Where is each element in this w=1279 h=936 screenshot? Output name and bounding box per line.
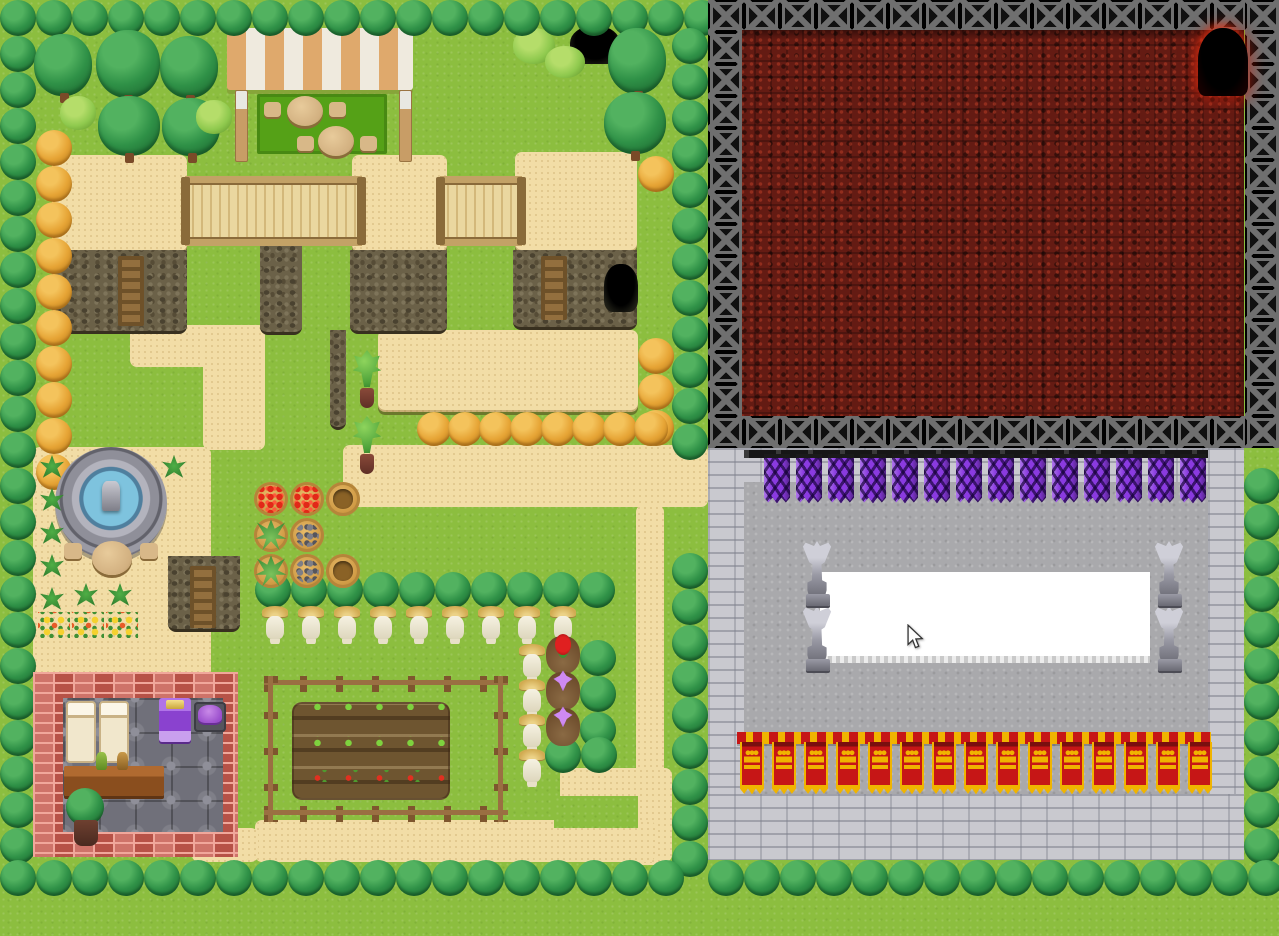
potted-sapling <box>350 350 384 408</box>
tree <box>672 769 708 805</box>
bed <box>66 701 96 763</box>
stool <box>264 102 281 117</box>
cliff <box>260 243 302 335</box>
tree <box>1176 860 1212 896</box>
red-banner <box>964 742 988 796</box>
lava-floor <box>738 28 1244 418</box>
tree <box>672 553 708 589</box>
bush <box>60 96 96 130</box>
tree-orange <box>36 418 72 454</box>
tree <box>672 661 708 697</box>
tree <box>580 640 616 676</box>
tree <box>0 288 36 324</box>
tree <box>360 860 396 896</box>
purple-banner <box>988 454 1014 506</box>
tree-orange <box>36 382 72 418</box>
tree-orange <box>638 374 674 410</box>
sand-plateau <box>515 152 637 252</box>
tree <box>672 280 708 316</box>
tree <box>180 860 216 896</box>
sand-plateau <box>52 155 187 253</box>
ladder <box>118 256 144 326</box>
tree <box>672 208 708 244</box>
bush <box>196 100 232 134</box>
round-table <box>287 96 323 126</box>
sand-plateau <box>352 155 447 253</box>
tree <box>0 860 36 896</box>
tree <box>0 540 36 576</box>
red-banner <box>740 742 764 796</box>
tree-orange <box>638 338 674 374</box>
ladder <box>190 566 216 628</box>
purple-banner <box>1116 454 1142 506</box>
purple-banner <box>860 454 886 506</box>
dungeon-wall <box>708 416 1279 448</box>
tree-orange <box>36 130 72 166</box>
tree <box>180 0 216 36</box>
tree <box>672 244 708 280</box>
tree <box>252 0 288 36</box>
scarecrow <box>478 606 504 646</box>
tree-orange <box>510 412 544 446</box>
tree <box>0 432 36 468</box>
tree <box>540 860 576 896</box>
dungeon-wall <box>1245 0 1279 448</box>
purple-banner <box>1180 454 1206 506</box>
tree <box>672 805 708 841</box>
tree-big <box>96 30 160 98</box>
red-banner <box>868 742 892 796</box>
tree-big <box>34 34 92 96</box>
tree <box>0 828 36 864</box>
fence <box>494 676 508 822</box>
scarecrow <box>514 606 540 646</box>
scarecrow <box>519 679 545 719</box>
tree <box>399 572 435 608</box>
sprout-row <box>296 700 446 710</box>
scarecrow <box>442 606 468 646</box>
tree <box>1244 612 1279 648</box>
tree <box>672 697 708 733</box>
tree-orange <box>36 202 72 238</box>
tree <box>672 100 708 136</box>
pedestal <box>1158 594 1182 606</box>
tree <box>672 388 708 424</box>
scarecrow <box>262 606 288 646</box>
bottle-green <box>96 752 107 770</box>
fence <box>264 676 278 822</box>
red-banner <box>1060 742 1084 796</box>
grass-island <box>554 796 638 828</box>
tree <box>216 860 252 896</box>
tree <box>0 684 36 720</box>
scarecrow <box>519 644 545 684</box>
stool <box>360 136 377 151</box>
tree <box>504 0 540 36</box>
tree <box>0 720 36 756</box>
tree <box>108 860 144 896</box>
purple-banner <box>1020 454 1046 506</box>
tree-big <box>604 92 666 154</box>
awning-pole <box>399 90 412 162</box>
tree <box>581 737 617 773</box>
stool <box>297 136 314 151</box>
berry-row <box>296 770 446 782</box>
sprout-row <box>296 736 446 746</box>
tree <box>672 316 708 352</box>
white-area <box>820 572 1150 656</box>
awning-pole <box>235 90 248 162</box>
bridge <box>440 176 522 246</box>
tree-orange <box>36 310 72 346</box>
tree <box>216 0 252 36</box>
tree <box>0 144 36 180</box>
basket-stones <box>290 554 324 588</box>
tree <box>672 28 708 64</box>
purple-banner <box>796 454 822 506</box>
tree <box>0 252 36 288</box>
red-banner <box>900 742 924 796</box>
tree-orange <box>417 412 451 446</box>
cliff <box>350 250 447 334</box>
purple-banner <box>1148 454 1174 506</box>
tree <box>432 0 468 36</box>
basket-stones <box>290 518 324 552</box>
tree <box>576 860 612 896</box>
tree <box>1244 576 1279 612</box>
red-banner <box>1156 742 1180 796</box>
tree-big <box>160 36 218 98</box>
purple-cake <box>198 705 222 723</box>
tree <box>672 589 708 625</box>
tree <box>0 0 36 36</box>
plant-pot <box>74 820 98 846</box>
tree <box>72 0 108 36</box>
tree <box>580 676 616 712</box>
sunflowers <box>106 612 138 638</box>
scarecrow <box>370 606 396 646</box>
tree <box>1244 684 1279 720</box>
dungeon-wall <box>708 0 1279 30</box>
tree <box>0 468 36 504</box>
tree <box>996 860 1032 896</box>
sand-corridor <box>343 445 708 507</box>
sunflowers <box>72 612 104 638</box>
tree <box>1212 860 1248 896</box>
tree <box>396 0 432 36</box>
tree <box>816 860 852 896</box>
purple-banner <box>956 454 982 506</box>
basket-empty <box>326 482 360 516</box>
scarecrow <box>406 606 432 646</box>
tree <box>1140 860 1176 896</box>
sand-path <box>203 325 265 450</box>
tree <box>471 572 507 608</box>
tree <box>72 860 108 896</box>
tilled-field <box>292 702 450 800</box>
tree-orange <box>36 166 72 202</box>
tree <box>144 860 180 896</box>
tree <box>0 648 36 684</box>
stool <box>140 543 158 559</box>
tree <box>435 572 471 608</box>
sand-platform <box>378 330 638 412</box>
tree-orange <box>36 346 72 382</box>
tree <box>540 0 576 36</box>
purple-banner <box>764 454 790 506</box>
purple-banner <box>892 454 918 506</box>
tree-orange <box>634 412 668 446</box>
tree <box>924 860 960 896</box>
tree <box>324 860 360 896</box>
tree <box>0 756 36 792</box>
tree <box>648 860 684 896</box>
tree <box>1068 860 1104 896</box>
tree <box>0 72 36 108</box>
tree-orange <box>572 412 606 446</box>
flowerpot-violet <box>546 708 580 746</box>
tree <box>468 860 504 896</box>
red-banner <box>1124 742 1148 796</box>
tree <box>888 860 924 896</box>
red-banner <box>772 742 796 796</box>
tree <box>0 216 36 252</box>
tree <box>672 625 708 661</box>
tree <box>507 572 543 608</box>
red-banner <box>932 742 956 796</box>
basket-empty <box>326 554 360 588</box>
scarecrow <box>298 606 324 646</box>
pedestal <box>1158 659 1182 671</box>
tree <box>1032 860 1068 896</box>
tree <box>744 860 780 896</box>
tree <box>363 572 399 608</box>
red-banner <box>1188 742 1212 796</box>
tree <box>324 0 360 36</box>
tree <box>288 860 324 896</box>
bush <box>545 46 585 78</box>
fence <box>264 676 508 692</box>
tree <box>543 572 579 608</box>
tree <box>0 792 36 828</box>
tree <box>780 860 816 896</box>
tree <box>579 572 615 608</box>
tree <box>0 324 36 360</box>
tree <box>1244 504 1279 540</box>
tree <box>708 860 744 896</box>
tree <box>0 612 36 648</box>
tree <box>672 352 708 388</box>
mouse-cursor <box>906 624 924 650</box>
purple-banner <box>828 454 854 506</box>
tree <box>0 36 36 72</box>
tree <box>0 504 36 540</box>
flowerpot-rose <box>546 636 580 674</box>
tree <box>1248 860 1279 896</box>
tree <box>1244 792 1279 828</box>
cliff <box>330 330 346 430</box>
rpg-map-screenshot[interactable] <box>0 0 1279 936</box>
tree <box>36 0 72 36</box>
basket-aloe <box>254 554 288 588</box>
tree-orange <box>541 412 575 446</box>
tree <box>0 576 36 612</box>
tree <box>0 396 36 432</box>
tree <box>360 0 396 36</box>
pedestal <box>806 659 830 671</box>
cave-entrance <box>604 264 638 312</box>
bridge <box>185 176 362 246</box>
pedestal <box>806 594 830 606</box>
round-table <box>92 541 132 575</box>
tree-orange <box>36 238 72 274</box>
scarecrow <box>334 606 360 646</box>
tree <box>468 0 504 36</box>
basket-aloe <box>254 518 288 552</box>
tree <box>0 180 36 216</box>
ladder <box>541 256 567 320</box>
fence <box>264 806 508 822</box>
stool <box>64 543 82 559</box>
vending-machine <box>159 698 191 742</box>
stool <box>329 102 346 117</box>
purple-banner <box>1052 454 1078 506</box>
basket-berries <box>290 482 324 516</box>
red-banner <box>1028 742 1052 796</box>
tree-orange <box>36 274 72 310</box>
purple-banner <box>1084 454 1110 506</box>
tree <box>36 860 72 896</box>
tree <box>432 860 468 896</box>
flowerpot-violet <box>546 672 580 710</box>
tree <box>612 860 648 896</box>
tree <box>0 360 36 396</box>
tree <box>672 136 708 172</box>
tree <box>672 424 708 460</box>
scarecrow <box>519 749 545 789</box>
tree <box>852 860 888 896</box>
tree-orange <box>638 156 674 192</box>
temple-wall <box>708 794 1244 860</box>
dark-figure <box>1198 28 1248 96</box>
tree-big <box>608 28 666 94</box>
tree <box>672 172 708 208</box>
tree <box>144 0 180 36</box>
potted-sapling <box>350 416 384 474</box>
tree <box>1244 828 1279 864</box>
tree <box>1244 756 1279 792</box>
tree-orange <box>603 412 637 446</box>
bottle-amber <box>117 752 128 770</box>
tree <box>396 860 432 896</box>
market-awning <box>227 28 413 90</box>
tree <box>672 733 708 769</box>
tree-orange <box>479 412 513 446</box>
tree <box>672 64 708 100</box>
tree <box>1244 540 1279 576</box>
tree <box>1244 720 1279 756</box>
tree <box>252 860 288 896</box>
tree <box>960 860 996 896</box>
sunflowers <box>38 612 70 638</box>
tree-orange <box>448 412 482 446</box>
basket-berries <box>254 482 288 516</box>
red-banner <box>996 742 1020 796</box>
tree <box>504 860 540 896</box>
red-banner <box>836 742 860 796</box>
round-table <box>318 126 354 156</box>
tree <box>0 108 36 144</box>
purple-banner <box>924 454 950 506</box>
tree <box>1104 860 1140 896</box>
tree <box>1244 468 1279 504</box>
red-banner <box>1092 742 1116 796</box>
tree <box>576 0 612 36</box>
dungeon-wall <box>708 0 742 448</box>
tree <box>1244 648 1279 684</box>
tree-big <box>98 96 160 156</box>
scarecrow <box>519 714 545 754</box>
map-scene <box>0 0 1279 936</box>
tree <box>288 0 324 36</box>
red-banner <box>804 742 828 796</box>
